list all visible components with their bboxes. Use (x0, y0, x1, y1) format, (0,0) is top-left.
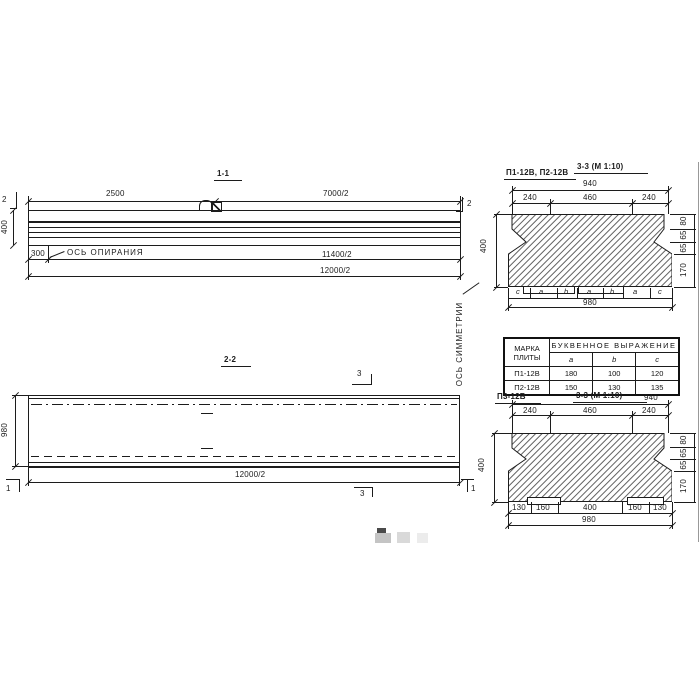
cut-mark-1-left: 1 (6, 485, 11, 493)
extension-line (508, 513, 509, 529)
extension-line (668, 186, 669, 214)
dimension-line-12000 (28, 276, 460, 277)
dimension-line-940 (512, 190, 668, 191)
cut-mark-1-right: 1 (471, 485, 476, 493)
cut-mark-2-right: 2 (467, 200, 472, 208)
letter-c: c (516, 288, 520, 296)
dim-980: 980 (583, 299, 597, 307)
cut-mark-3-top: 3 (357, 370, 362, 378)
dim-400: 400 (583, 504, 597, 512)
strand-line (28, 227, 460, 228)
dim-170: 170 (680, 476, 688, 496)
letter-c: c (658, 288, 662, 296)
section-3-3-title: 3-3 (М 1:10) (576, 392, 622, 400)
hidden-line-bottom (31, 456, 457, 457)
section-3-3-title: 3-3 (М 1:10) (577, 163, 623, 171)
slab-marks-label: П1-12В, П2-12В (506, 169, 568, 177)
dim-240: 240 (642, 407, 656, 415)
dim-line-400 (494, 433, 495, 502)
dimension-line-240-460-240 (512, 203, 668, 204)
dimension-line-980 (508, 525, 672, 526)
dim-line-height (13, 210, 14, 245)
center-dash (201, 413, 213, 414)
plan-left-edge (28, 395, 29, 466)
col-header-c: c (636, 353, 679, 367)
dim-980: 980 (582, 516, 596, 524)
dim-cell-tick (558, 502, 559, 513)
scan-smudge (417, 533, 428, 543)
plan-top-edge-inner (28, 398, 459, 399)
cut-mark-line (6, 479, 20, 480)
dim-11400-2: 11400/2 (322, 251, 352, 259)
dimension-line-11400 (28, 259, 460, 260)
letter-b: b (564, 288, 568, 296)
cut-mark-line (462, 197, 463, 212)
dim-160: 160 (628, 504, 642, 512)
mark-header-cell: МАРКА ПЛИТЫ (504, 338, 550, 367)
dimension-line-980 (508, 307, 672, 308)
dim-2500: 2500 (106, 190, 125, 198)
symmetry-cut-extension (460, 196, 461, 280)
letter-cell-tick (508, 288, 509, 298)
extension-line (668, 400, 669, 433)
strand-line (28, 221, 460, 223)
slab-top-edge (28, 210, 460, 211)
plan-bottom-edge (28, 466, 459, 468)
dim-cell-tick (649, 502, 650, 513)
cut-mark-line (467, 479, 468, 492)
dim-65: 65 (680, 455, 688, 475)
extension-line (672, 513, 673, 529)
center-dash (201, 448, 213, 449)
sheet-border-line (698, 162, 699, 542)
dim-12000-2: 12000/2 (235, 471, 265, 479)
title-underline (574, 173, 648, 174)
expression-header-cell: БУКВЕННОЕ ВЫРАЖЕНИЕ (550, 338, 680, 353)
section-2-2-title: 2-2 (224, 356, 236, 364)
dim-7000-2: 7000/2 (323, 190, 349, 198)
mark-header-line1: МАРКА (505, 344, 549, 353)
dim-300: 300 (31, 250, 45, 258)
letter-expression-table: МАРКА ПЛИТЫ БУКВЕННОЕ ВЫРАЖЕНИЕ a b c П1… (503, 337, 680, 396)
symmetry-axis-label: ОСЬ СИММЕТРИИ (456, 294, 464, 394)
cut-mark-line (371, 374, 372, 384)
dim-cell-tick (622, 502, 623, 513)
letter-cell-tick (650, 288, 651, 298)
dimension-line-bottom (508, 513, 672, 514)
dim-65: 65 (680, 238, 688, 258)
plan-symmetry-edge (459, 395, 460, 466)
dimension-line-240-460-240 (512, 415, 668, 416)
slab-bottom-edge (28, 245, 460, 246)
engineering-drawing-canvas: 1-1 2500 7000/2 2 2 400 300 ОСЬ ОПИРАНИЯ… (0, 0, 700, 700)
dimension-line-top (28, 201, 460, 202)
extension-line (674, 287, 696, 288)
letter-a: a (539, 288, 543, 296)
dim-170: 170 (680, 260, 688, 280)
dimension-line-12000 (28, 482, 460, 483)
leader-line (49, 251, 64, 258)
dimension-line-940 (512, 404, 668, 405)
plan-top-edge (28, 395, 459, 396)
letter-b: b (610, 288, 614, 296)
cut-mark-line (354, 487, 373, 488)
letter-cell-tick (577, 288, 578, 298)
cut-mark-3-bottom: 3 (360, 490, 365, 498)
section-1-1-title: 1-1 (217, 170, 229, 178)
extension-line (512, 400, 513, 433)
letter-cell-tick (557, 288, 558, 298)
mark-cell: П1-12В (504, 367, 550, 381)
dim-240: 240 (523, 194, 537, 202)
strand-line (28, 237, 460, 238)
dim-line-right (694, 433, 695, 502)
support-axis-label: ОСЬ ОПИРАНИЯ (67, 249, 144, 257)
plan-bottom-edge-inner (28, 462, 459, 463)
value-b: 100 (593, 367, 636, 381)
table-row: П1-12В 180 100 120 (504, 367, 679, 381)
dim-940: 940 (583, 180, 597, 188)
hatched-section (509, 434, 673, 502)
extension-line (512, 186, 513, 214)
dim-240: 240 (642, 194, 656, 202)
letter-a: a (633, 288, 637, 296)
letter-cell-tick (623, 288, 624, 298)
dim-460: 460 (583, 407, 597, 415)
letter-cell-tick (603, 288, 604, 298)
letter-cell-tick (530, 288, 531, 298)
dim-160: 160 (536, 504, 550, 512)
title-underline (573, 402, 647, 403)
dim-line-400 (496, 214, 497, 287)
strand-line (28, 232, 460, 233)
cut-mark-line (352, 384, 372, 385)
dim-line-width (15, 395, 16, 466)
bottom-rib-tab (578, 286, 624, 294)
dim-line-right (694, 214, 695, 287)
letter-cell-tick (672, 288, 673, 298)
cut-mark-line (19, 479, 20, 492)
title-underline (214, 180, 242, 181)
title-underline (221, 366, 251, 367)
hatched-section (509, 215, 673, 287)
extension-line (674, 502, 696, 503)
scan-smudge (397, 532, 410, 543)
dim-12000-2: 12000/2 (320, 267, 350, 275)
extension-line (632, 411, 633, 433)
dim-940: 940 (644, 394, 658, 402)
cross-section-shape-p3 (508, 433, 672, 502)
dim-130: 130 (653, 504, 667, 512)
value-c: 120 (636, 367, 679, 381)
cross-section-shape-p1-p2 (508, 214, 672, 287)
col-header-b: b (593, 353, 636, 367)
dim-cell-tick (531, 502, 532, 513)
dim-400: 400 (480, 234, 488, 258)
dim-460: 460 (583, 194, 597, 202)
dim-130: 130 (512, 504, 526, 512)
slab-left-edge (28, 196, 29, 280)
col-header-a: a (550, 353, 593, 367)
label-underline (504, 179, 576, 180)
mark-header-line2: ПЛИТЫ (505, 353, 549, 362)
extension-line (550, 199, 551, 214)
letter-a: a (587, 288, 591, 296)
dim-980-width: 980 (1, 416, 9, 444)
cut-mark-2-left: 2 (2, 196, 7, 204)
extension-line (632, 199, 633, 214)
dim-400-height: 400 (1, 215, 9, 239)
value-a: 180 (550, 367, 593, 381)
cut-mark-line (372, 487, 373, 497)
hidden-line-top (31, 404, 457, 405)
leader-line (463, 282, 480, 294)
dim-240: 240 (523, 407, 537, 415)
dim-tick (10, 242, 17, 249)
dim-400: 400 (478, 453, 486, 477)
lifting-loop-anchor (211, 202, 222, 212)
extension-line (550, 411, 551, 433)
table-row: МАРКА ПЛИТЫ БУКВЕННОЕ ВЫРАЖЕНИЕ (504, 338, 679, 353)
scan-smudge (375, 533, 391, 543)
